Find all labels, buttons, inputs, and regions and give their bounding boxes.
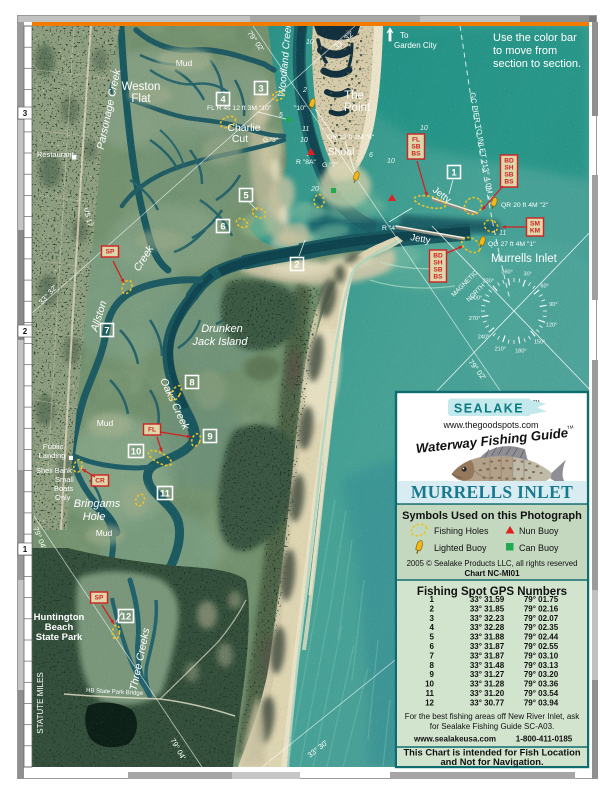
svg-text:BD: BD: [433, 253, 443, 260]
svg-text:BS: BS: [411, 151, 421, 158]
svg-text:7: 7: [104, 326, 109, 337]
svg-text:79° 03.54: 79° 03.54: [524, 689, 559, 698]
svg-text:2: 2: [294, 260, 299, 271]
svg-text:79° 02.44: 79° 02.44: [524, 633, 559, 642]
svg-text:79° 02.07: 79° 02.07: [524, 614, 559, 623]
svg-text:Mud: Mud: [96, 528, 113, 538]
svg-text:TM: TM: [567, 424, 574, 430]
svg-text:BS: BS: [433, 274, 443, 281]
svg-text:270°: 270°: [469, 316, 480, 322]
svg-text:12: 12: [425, 698, 434, 707]
svg-text:Landing: Landing: [39, 451, 66, 460]
svg-text:79° 02.16: 79° 02.16: [524, 604, 559, 613]
svg-text:KM: KM: [530, 228, 541, 235]
svg-text:33° 32.28: 33° 32.28: [470, 623, 505, 632]
svg-text:33° 31.87: 33° 31.87: [470, 651, 505, 660]
svg-text:Shell Bank: Shell Bank: [36, 466, 72, 475]
svg-text:Hole: Hole: [83, 511, 106, 523]
svg-text:SM: SM: [530, 221, 540, 228]
svg-text:Boats: Boats: [54, 484, 73, 493]
svg-text:11: 11: [160, 489, 171, 500]
svg-text:Restaurant: Restaurant: [37, 150, 75, 159]
svg-text:33° 31.48: 33° 31.48: [470, 661, 505, 670]
svg-text:Lighted Buoy: Lighted Buoy: [434, 543, 487, 553]
svg-text:12: 12: [121, 612, 132, 623]
svg-text:Mud: Mud: [97, 418, 114, 428]
svg-text:33° 31.20: 33° 31.20: [470, 689, 505, 698]
svg-text:10: 10: [300, 137, 308, 144]
svg-text:G "7": G "7": [322, 162, 338, 169]
svg-text:Nun Buoy: Nun Buoy: [519, 526, 559, 536]
svg-text:11: 11: [302, 126, 309, 133]
svg-text:7: 7: [430, 651, 435, 660]
svg-text:1-800-411-0185: 1-800-411-0185: [516, 735, 573, 744]
svg-text:8: 8: [430, 661, 435, 670]
svg-text:3: 3: [23, 109, 28, 118]
svg-text:Flat: Flat: [131, 93, 151, 105]
svg-text:2: 2: [302, 87, 307, 94]
svg-text:9: 9: [430, 670, 435, 679]
svg-text:210°: 210°: [495, 347, 506, 353]
svg-text:SEALAKE: SEALAKE: [454, 402, 524, 416]
svg-text:Shoal: Shoal: [328, 146, 355, 158]
svg-text:79° 03.13: 79° 03.13: [524, 661, 559, 670]
svg-text:1: 1: [430, 595, 435, 604]
svg-text:79° 02.55: 79° 02.55: [524, 642, 559, 651]
svg-text:G "3": G "3": [263, 137, 279, 144]
svg-text:MURRELLS INLET: MURRELLS INLET: [411, 482, 573, 502]
svg-text:QR 20 ft 4M "2": QR 20 ft 4M "2": [501, 202, 549, 209]
svg-text:Mud: Mud: [176, 58, 193, 68]
svg-text:1: 1: [23, 545, 28, 554]
svg-text:and Not for Navigation.: and Not for Navigation.: [440, 756, 543, 767]
svg-text:QG 27 ft 4M "1": QG 27 ft 4M "1": [488, 241, 536, 248]
svg-text:Fishing Holes: Fishing Holes: [434, 526, 489, 536]
svg-text:33° 30.77: 33° 30.77: [470, 698, 505, 707]
svg-text:Small: Small: [55, 475, 74, 484]
svg-text:to move from: to move from: [493, 45, 557, 57]
svg-text:Public: Public: [43, 442, 64, 451]
svg-text:79° 03.10: 79° 03.10: [524, 651, 559, 660]
svg-text:20: 20: [310, 186, 319, 193]
svg-text:www.sealakeusa.com: www.sealakeusa.com: [413, 735, 496, 744]
svg-text:2: 2: [430, 604, 435, 613]
svg-text:State Park: State Park: [36, 632, 83, 643]
svg-text:R "4": R "4": [382, 225, 398, 232]
svg-text:120°: 120°: [546, 323, 557, 329]
svg-text:SB: SB: [504, 172, 513, 179]
svg-text:section to section.: section to section.: [493, 58, 581, 70]
svg-text:To: To: [400, 31, 409, 40]
svg-text:79° 02.35: 79° 02.35: [524, 623, 559, 632]
svg-text:The: The: [344, 90, 364, 102]
svg-text:33° 32.23: 33° 32.23: [470, 614, 505, 623]
svg-text:10: 10: [420, 125, 428, 132]
svg-text:"10": "10": [294, 105, 307, 112]
svg-text:Drunken: Drunken: [201, 323, 243, 335]
svg-text:10: 10: [131, 447, 142, 458]
svg-text:4: 4: [220, 95, 226, 106]
svg-text:79° 03.36: 79° 03.36: [524, 680, 559, 689]
svg-text:30°: 30°: [524, 271, 532, 277]
svg-text:Cut: Cut: [232, 133, 248, 145]
svg-text:33° 31.85: 33° 31.85: [470, 604, 505, 613]
svg-text:11: 11: [499, 230, 506, 237]
svg-text:Weston: Weston: [122, 81, 161, 93]
svg-text:79° 03.20: 79° 03.20: [524, 670, 559, 679]
svg-text:6: 6: [220, 222, 225, 233]
svg-text:5: 5: [430, 633, 435, 642]
svg-text:1: 1: [451, 168, 457, 179]
svg-text:360°: 360°: [501, 270, 512, 276]
svg-text:3: 3: [430, 614, 435, 623]
svg-text:2: 2: [23, 327, 28, 336]
svg-text:10: 10: [387, 158, 395, 165]
svg-text:33° 31.27: 33° 31.27: [470, 670, 505, 679]
svg-text:for Sealake Fishing Guide SC-A: for Sealake Fishing Guide SC-A03.: [430, 722, 555, 731]
svg-text:79° 03.94: 79° 03.94: [524, 698, 559, 707]
svg-text:Point: Point: [344, 102, 371, 114]
svg-text:FL: FL: [148, 427, 156, 434]
svg-text:11: 11: [426, 689, 435, 698]
svg-text:Symbols Used on this Photograp: Symbols Used on this Photograph: [402, 510, 582, 522]
svg-text:8: 8: [189, 378, 194, 389]
svg-text:SP: SP: [95, 595, 104, 602]
svg-text:79° 01.75: 79° 01.75: [524, 595, 559, 604]
svg-text:3: 3: [258, 84, 263, 95]
svg-text:FL: FL: [412, 137, 420, 144]
svg-text:STATUTE MILES: STATUTE MILES: [36, 672, 45, 734]
svg-text:Only: Only: [55, 493, 71, 502]
svg-text:Chart NC-MI01: Chart NC-MI01: [464, 569, 520, 578]
svg-text:BD: BD: [504, 158, 514, 165]
svg-text:BS: BS: [504, 179, 514, 186]
svg-text:60°: 60°: [540, 283, 548, 289]
svg-text:CR: CR: [95, 478, 105, 485]
svg-text:6: 6: [369, 152, 373, 159]
svg-text:Murrells Inlet: Murrells Inlet: [491, 253, 558, 265]
svg-text:2005 © Sealake Products LLC, a: 2005 © Sealake Products LLC, all rights …: [407, 559, 578, 568]
svg-text:90°: 90°: [549, 302, 557, 308]
svg-text:SP: SP: [106, 249, 115, 256]
svg-text:SB: SB: [411, 144, 420, 151]
svg-text:Use the color bar: Use the color bar: [493, 32, 577, 44]
svg-text:SB: SB: [433, 267, 442, 274]
svg-text:180°: 180°: [515, 348, 526, 354]
svg-text:9: 9: [207, 432, 212, 443]
svg-text:150°: 150°: [534, 340, 545, 346]
svg-text:10: 10: [306, 39, 314, 46]
svg-text:240°: 240°: [478, 335, 489, 341]
svg-text:Garden City: Garden City: [394, 41, 437, 50]
svg-text:33° 31.88: 33° 31.88: [470, 633, 505, 642]
svg-text:Can Buoy: Can Buoy: [519, 543, 559, 553]
svg-text:QR 12 ft 2M "6": QR 12 ft 2M "6": [327, 134, 375, 141]
svg-text:Bringams: Bringams: [74, 498, 121, 510]
svg-text:6: 6: [430, 642, 435, 651]
svg-text:33° 31.59: 33° 31.59: [470, 595, 505, 604]
svg-text:4: 4: [430, 623, 435, 632]
svg-text:330°: 330°: [483, 278, 494, 284]
svg-text:R "8A": R "8A": [296, 159, 317, 166]
svg-text:33° 31.28: 33° 31.28: [470, 680, 505, 689]
svg-text:For the best fishing areas off: For the best fishing areas off New River…: [405, 712, 581, 721]
svg-text:www.thegoodspots.com: www.thegoodspots.com: [442, 420, 538, 430]
svg-text:5: 5: [243, 191, 249, 202]
svg-text:SH: SH: [433, 260, 442, 267]
svg-text:SH: SH: [504, 165, 513, 172]
svg-text:33° 31.87: 33° 31.87: [470, 642, 505, 651]
svg-text:10: 10: [425, 680, 434, 689]
svg-text:Jack Island: Jack Island: [191, 336, 248, 348]
